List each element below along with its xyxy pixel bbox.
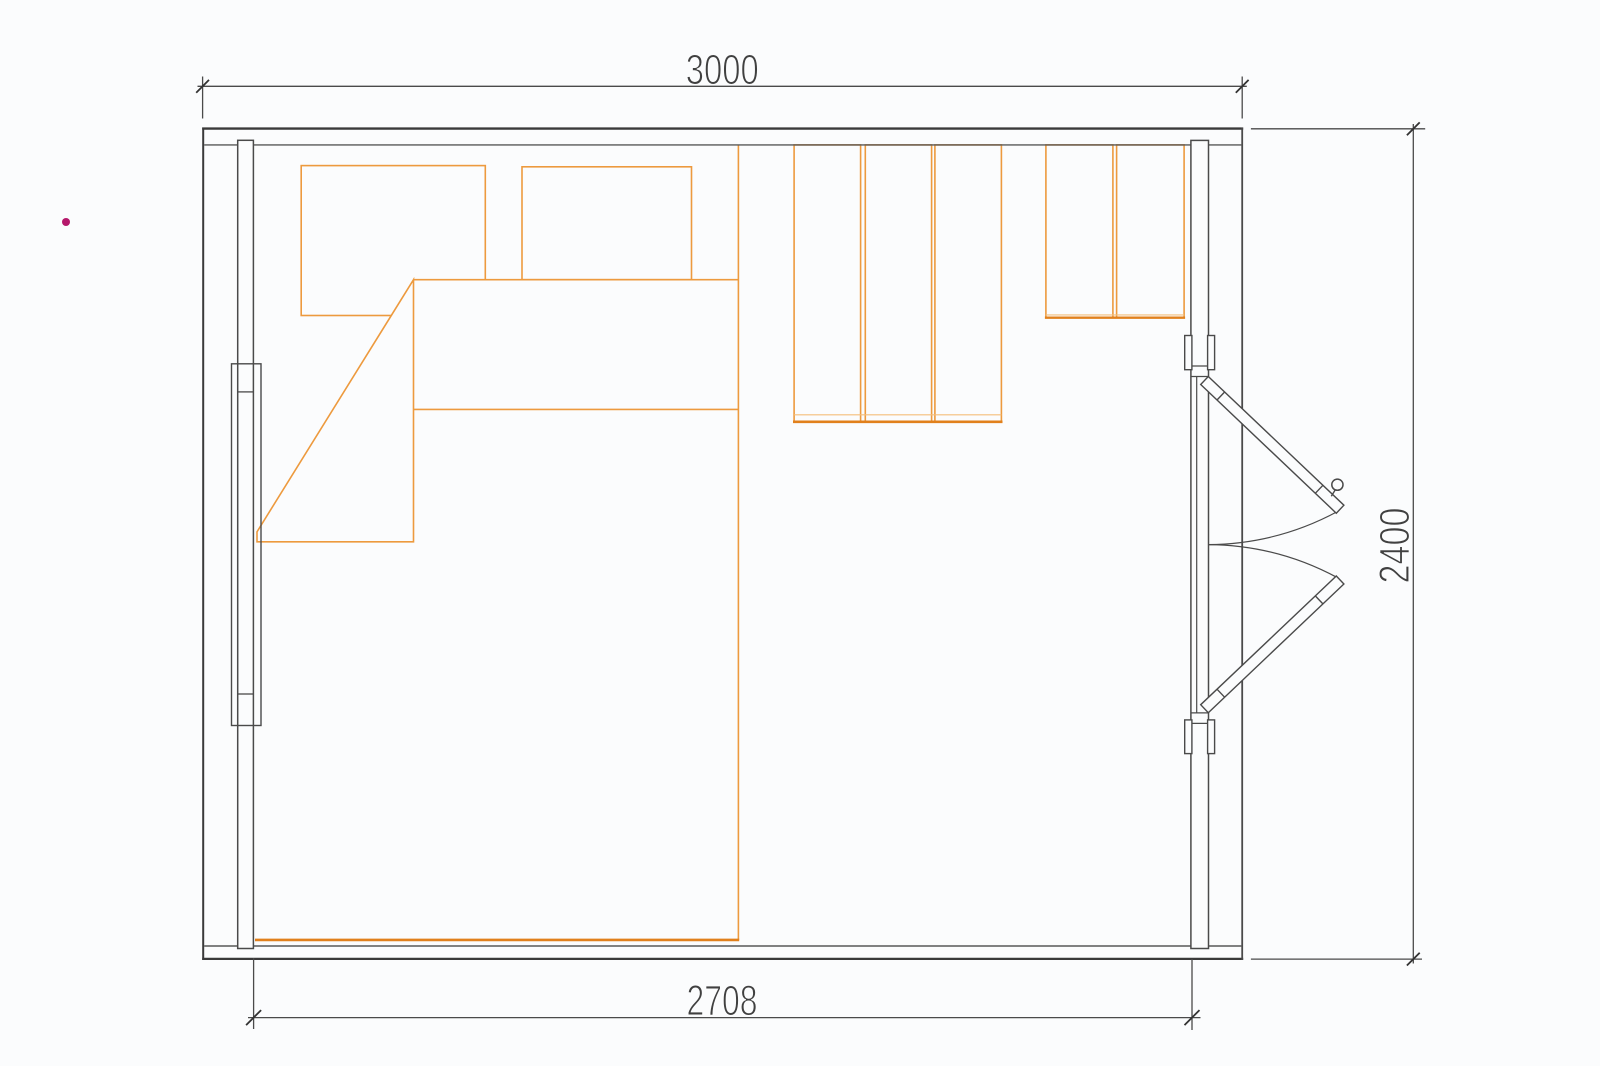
svg-text:3000: 3000	[686, 47, 759, 94]
svg-text:2708: 2708	[687, 978, 758, 1025]
svg-text:2400: 2400	[1372, 508, 1419, 584]
